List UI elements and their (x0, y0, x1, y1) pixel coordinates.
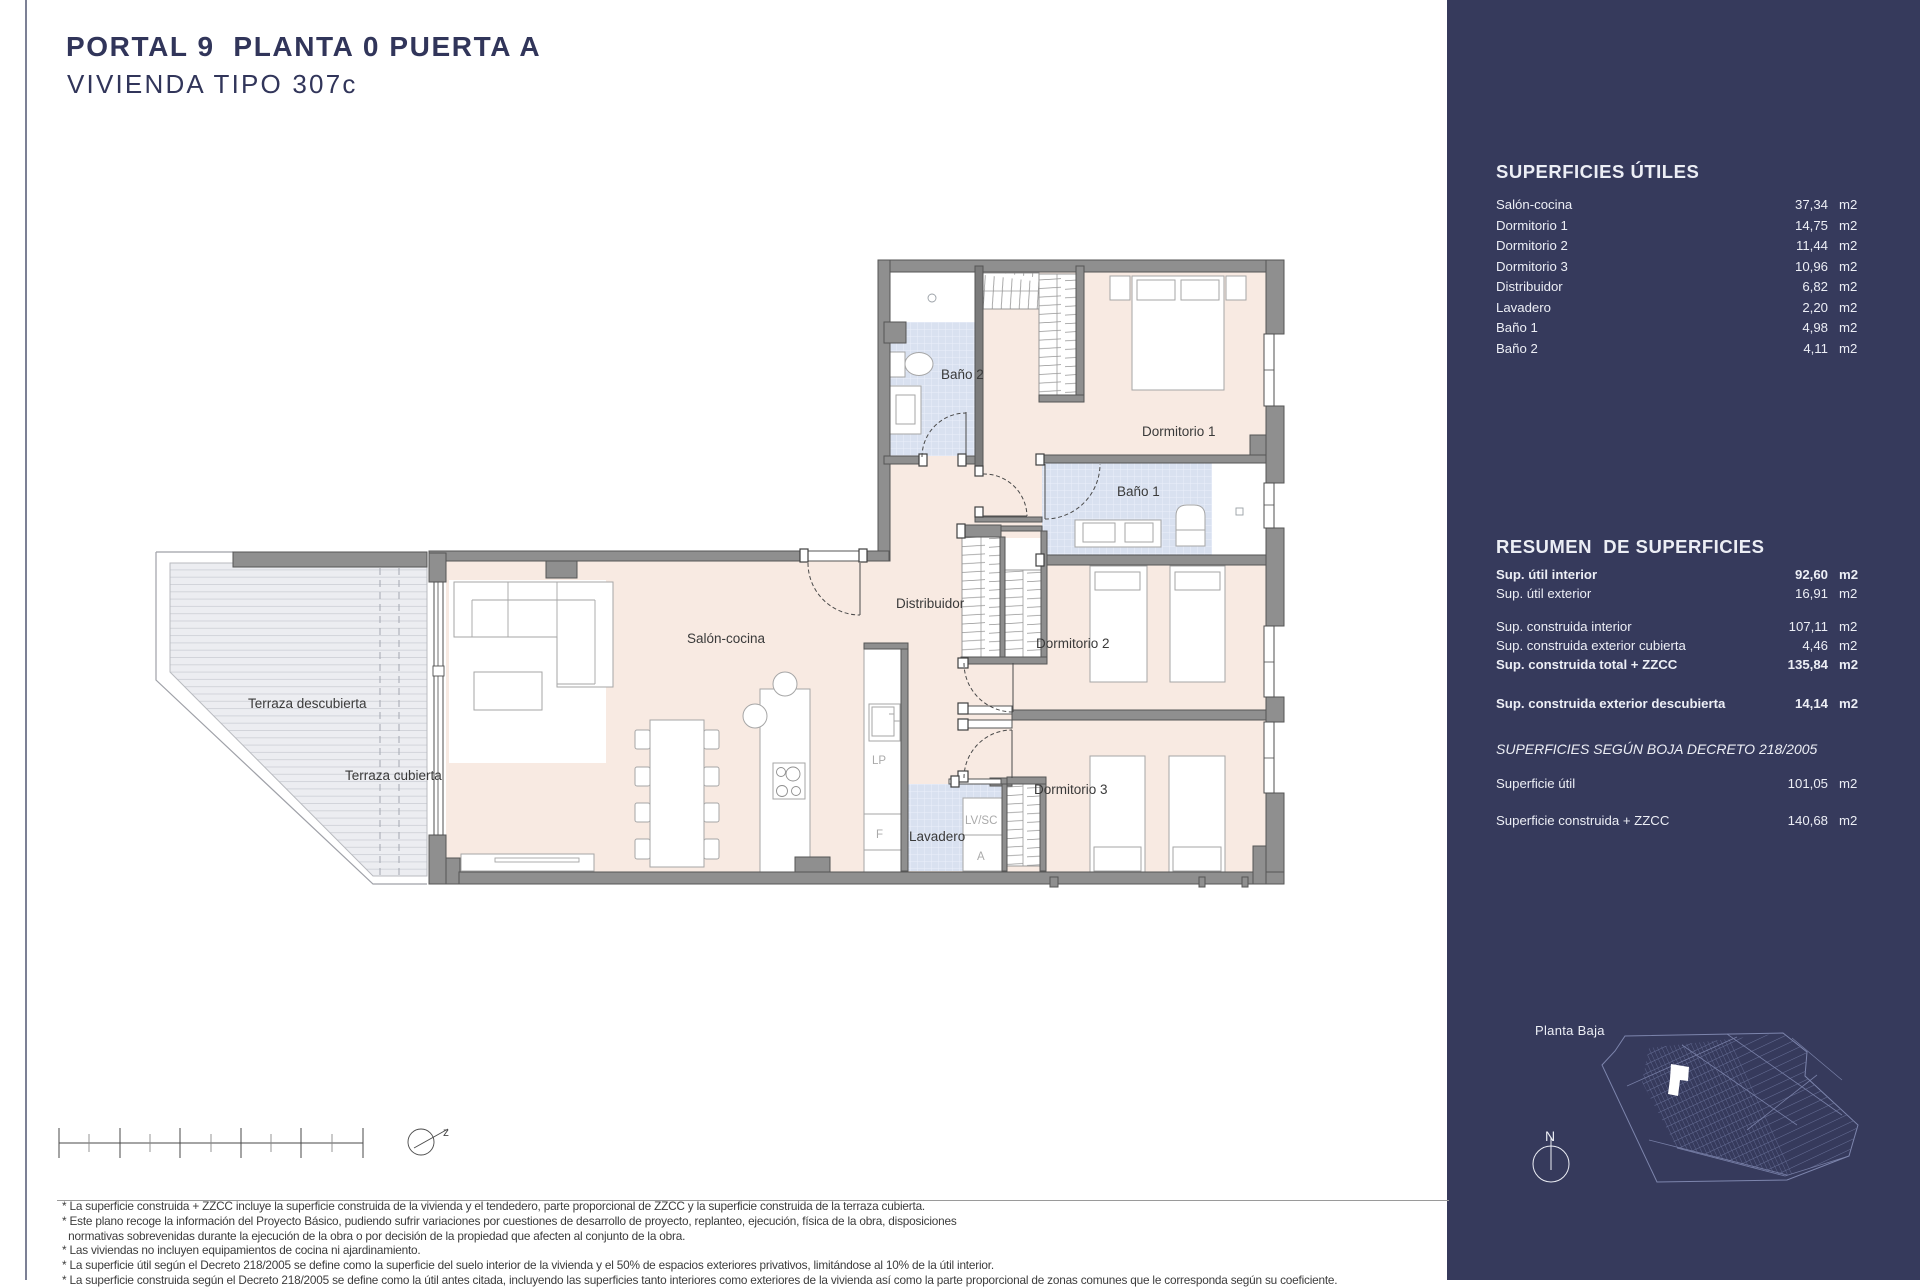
svg-text:F: F (876, 829, 883, 841)
svg-text:Baño 2: Baño 2 (941, 367, 984, 382)
svg-text:LP: LP (872, 755, 886, 767)
svg-text:Terraza descubierta: Terraza descubierta (248, 696, 367, 711)
svg-text:Baño 1: Baño 1 (1117, 484, 1160, 499)
svg-text:Salón-cocina: Salón-cocina (687, 631, 766, 646)
svg-text:Dormitorio 1: Dormitorio 1 (1142, 424, 1216, 439)
svg-text:Dormitorio 3: Dormitorio 3 (1034, 782, 1108, 797)
svg-text:z: z (443, 1125, 449, 1139)
svg-text:A: A (977, 851, 985, 863)
svg-text:Lavadero: Lavadero (909, 829, 965, 844)
svg-text:Distribuidor: Distribuidor (896, 596, 965, 611)
svg-text:Terraza cubierta: Terraza cubierta (345, 768, 442, 783)
svg-text:LV/SC: LV/SC (965, 815, 997, 827)
svg-text:Dormitorio 2: Dormitorio 2 (1036, 636, 1110, 651)
svg-text:N: N (1545, 1128, 1555, 1144)
